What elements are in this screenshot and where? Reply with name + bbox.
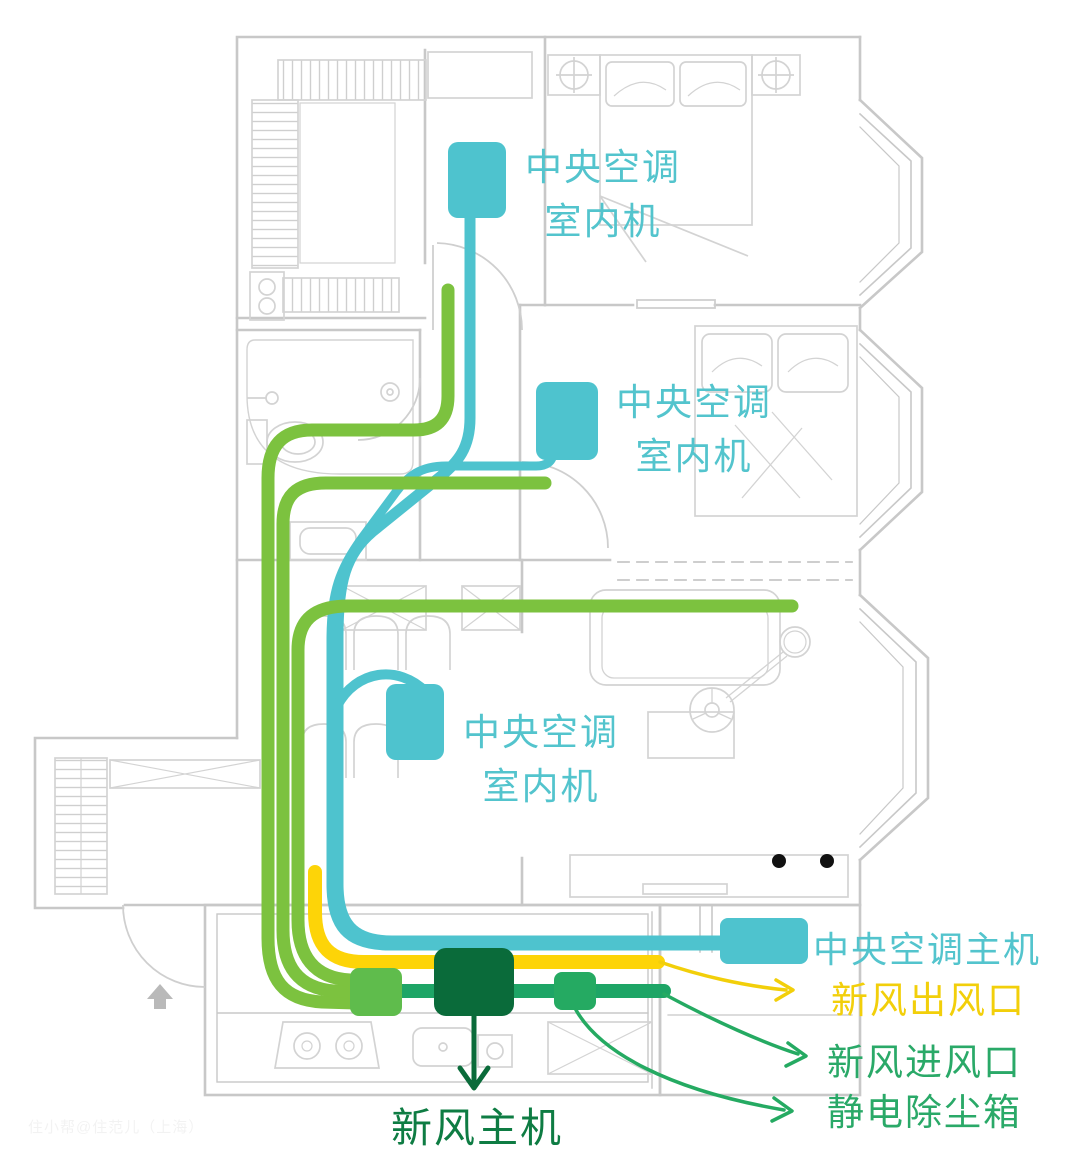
watermark: 住小帮@住范儿（上海）: [28, 1116, 204, 1137]
ac-indoor-unit-box-2: [536, 382, 598, 460]
entry-arrow-icon: [147, 984, 173, 1009]
ac-indoor-unit-box-3: [386, 684, 444, 760]
label-indoor-unit-1: 中央空调 室内机: [505, 141, 701, 248]
label-indoor-unit-1-line2: 室内机: [545, 201, 662, 242]
ceiling-dot-1: [772, 854, 786, 868]
fresh-out-arrow: [660, 962, 786, 990]
label-indoor-unit-2-line1: 中央空调: [616, 382, 772, 423]
label-dust-box: 静电除尘箱: [827, 1086, 1022, 1140]
label-indoor-unit-2: 中央空调 室内机: [598, 376, 790, 483]
fresh-in-arrow: [664, 994, 798, 1054]
fresh-air-main-unit-box: [434, 948, 514, 1016]
label-main-ac-unit: 中央空调主机: [813, 924, 1041, 976]
label-fresh-air-outlet: 新风出风口: [831, 974, 1026, 1028]
fresh-air-junction-box: [350, 968, 402, 1016]
ac-outdoor-main-unit-box: [720, 918, 808, 964]
ac-pipes: [331, 216, 726, 946]
label-fresh-air-inlet: 新风进风口: [827, 1036, 1022, 1090]
label-indoor-unit-3-line2: 室内机: [483, 766, 600, 807]
ac-indoor-unit-box-1: [448, 142, 506, 218]
label-indoor-unit-2-line2: 室内机: [636, 436, 753, 477]
label-indoor-unit-1-line1: 中央空调: [525, 147, 681, 188]
ac-pipe-unit1: [338, 216, 726, 941]
ceiling-dot-2: [820, 854, 834, 868]
label-indoor-unit-3-line1: 中央空调: [463, 712, 619, 753]
hvac-floorplan-diagram: 中央空调 室内机 中央空调 室内机 中央空调 室内机 中央空调主机 新风出风口 …: [0, 0, 1080, 1157]
label-fresh-air-main-unit: 新风主机: [391, 1099, 563, 1157]
electrostatic-dust-box: [554, 972, 596, 1010]
label-indoor-unit-3: 中央空调 室内机: [443, 706, 639, 813]
